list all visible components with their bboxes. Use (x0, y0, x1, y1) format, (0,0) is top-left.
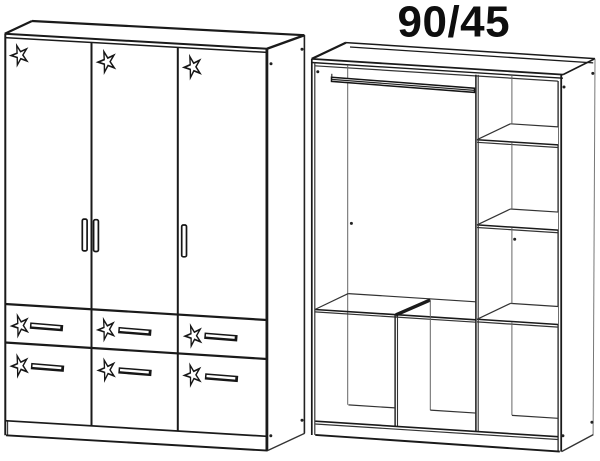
svg-text:90/45: 90/45 (398, 0, 511, 47)
